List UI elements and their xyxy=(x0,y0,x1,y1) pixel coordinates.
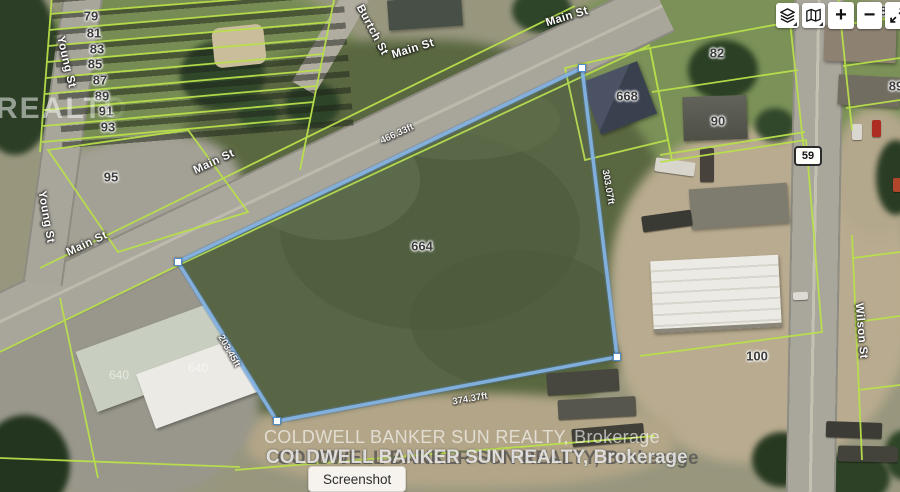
parcel-vertex-handle[interactable] xyxy=(174,258,182,266)
parcel-number: 640 xyxy=(109,368,129,382)
parcel-vertex-handle[interactable] xyxy=(613,353,621,361)
parcel-number: 82 xyxy=(710,46,724,61)
parcel-number: 100 xyxy=(746,349,768,364)
parcel-number: 79 xyxy=(84,9,98,24)
parcel-vertex-handle[interactable] xyxy=(273,417,281,425)
fullscreen-button[interactable] xyxy=(885,2,900,29)
zoom-out-button[interactable]: − xyxy=(857,2,882,29)
dropdown-corner-icon xyxy=(819,22,823,26)
parcel-number: 664 xyxy=(411,239,433,254)
parcel-number: 93 xyxy=(101,120,115,135)
parcel-number: 87 xyxy=(93,73,107,88)
fullscreen-icon xyxy=(890,8,900,23)
basemap-icon xyxy=(806,8,821,23)
parcel-number: 89 xyxy=(889,79,900,94)
screenshot-button[interactable]: Screenshot xyxy=(308,466,406,492)
map-viewport[interactable]: Main StMain StMain StMain StYoung StYoun… xyxy=(0,0,900,492)
parcel-boundaries xyxy=(0,0,900,492)
parcel-number: 81 xyxy=(87,26,101,41)
highway-59-shield: 59 xyxy=(794,146,822,166)
parcel-number: 83 xyxy=(90,42,104,57)
parcel-number: 95 xyxy=(104,170,118,185)
parcel-number: 91 xyxy=(99,104,113,119)
parcel-number: 90 xyxy=(711,114,725,129)
parcel-number: 640 xyxy=(188,361,208,375)
parcel-number: 668 xyxy=(616,89,638,104)
layers-icon xyxy=(780,8,795,23)
basemap-button[interactable] xyxy=(802,3,825,28)
layers-button[interactable] xyxy=(776,3,799,28)
parcel-number: 85 xyxy=(88,57,102,72)
parcel-vertex-handle[interactable] xyxy=(578,64,586,72)
dropdown-corner-icon xyxy=(793,22,797,26)
zoom-in-button[interactable]: + xyxy=(828,2,854,29)
parcel-number: 89 xyxy=(95,89,109,104)
